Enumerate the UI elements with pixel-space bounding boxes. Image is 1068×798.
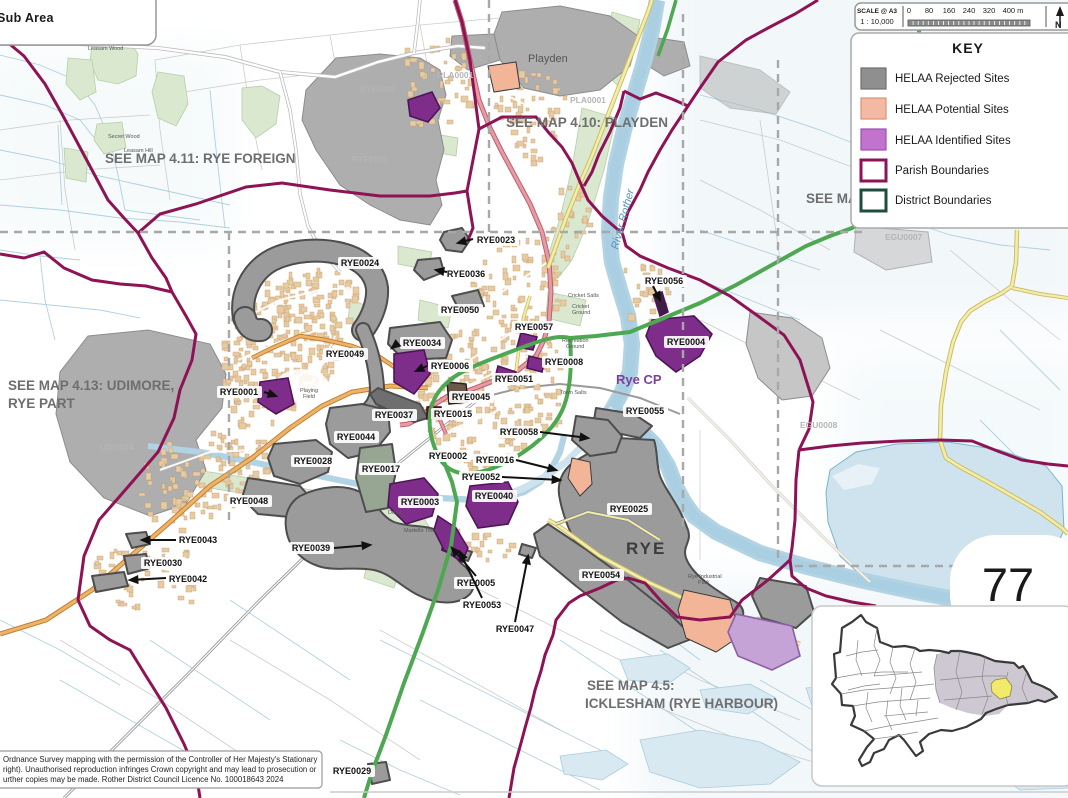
svg-text:District Boundaries: District Boundaries bbox=[895, 195, 992, 207]
svg-text:Ground: Ground bbox=[566, 344, 584, 350]
svg-text:Cricket Salts: Cricket Salts bbox=[568, 293, 599, 299]
svg-text:Playden: Playden bbox=[528, 53, 568, 65]
svg-text:RYE0017: RYE0017 bbox=[362, 464, 400, 474]
svg-text:PLA0001: PLA0001 bbox=[570, 95, 606, 105]
svg-text:RYE0034: RYE0034 bbox=[403, 338, 441, 348]
svg-text:KEY: KEY bbox=[952, 40, 984, 56]
svg-text:RYE0047: RYE0047 bbox=[496, 624, 534, 634]
svg-text:RYE0057: RYE0057 bbox=[515, 322, 553, 332]
svg-text:Ordnance Survey mapping with t: Ordnance Survey mapping with the permiss… bbox=[3, 755, 317, 764]
svg-text:RYE0016: RYE0016 bbox=[476, 455, 514, 465]
svg-text:1 : 10,000: 1 : 10,000 bbox=[860, 17, 893, 26]
svg-text:RYE0025: RYE0025 bbox=[610, 504, 648, 514]
svg-text:Park: Park bbox=[698, 580, 710, 586]
svg-text:RYE0048: RYE0048 bbox=[230, 496, 268, 506]
svg-text:RYF0001: RYF0001 bbox=[360, 84, 396, 94]
svg-text:HELAA Identified Sites: HELAA Identified Sites bbox=[895, 135, 1011, 147]
svg-text:Secret Wood: Secret Wood bbox=[108, 134, 140, 140]
svg-text:RLA0001: RLA0001 bbox=[437, 70, 474, 80]
svg-text:HELAA Rejected Sites: HELAA Rejected Sites bbox=[895, 73, 1010, 85]
svg-text:400 m: 400 m bbox=[1003, 6, 1024, 15]
svg-text:RYE0036: RYE0036 bbox=[447, 269, 485, 279]
svg-text:RYE0049: RYE0049 bbox=[326, 349, 364, 359]
svg-text:RYE: RYE bbox=[626, 539, 666, 558]
svg-text:Field: Field bbox=[303, 394, 315, 400]
svg-text:RYE0029: RYE0029 bbox=[333, 766, 371, 776]
svg-text:SEE MAP 4.5:: SEE MAP 4.5: bbox=[587, 678, 675, 693]
svg-text:RYE0024: RYE0024 bbox=[341, 258, 379, 268]
svg-text:HELAA Potential Sites: HELAA Potential Sites bbox=[895, 104, 1009, 116]
svg-text:Martello Tower: Martello Tower bbox=[404, 528, 440, 534]
svg-text:RYE0043: RYE0043 bbox=[179, 535, 217, 545]
svg-text:RYE0039: RYE0039 bbox=[292, 543, 330, 553]
svg-text:SEE MAP 4.10: PLAYDEN: SEE MAP 4.10: PLAYDEN bbox=[506, 115, 668, 130]
svg-text:Sub Area: Sub Area bbox=[0, 11, 55, 25]
svg-text:320: 320 bbox=[983, 6, 996, 15]
svg-text:Leasam Wood: Leasam Wood bbox=[88, 46, 123, 52]
svg-text:Leasam Hill: Leasam Hill bbox=[124, 148, 153, 154]
svg-text:RYE0003: RYE0003 bbox=[401, 497, 439, 507]
svg-text:EGU0007: EGU0007 bbox=[885, 232, 923, 242]
svg-text:RYE0044: RYE0044 bbox=[337, 432, 375, 442]
svg-text:Parish Boundaries: Parish Boundaries bbox=[895, 165, 989, 177]
svg-text:RYE0028: RYE0028 bbox=[294, 456, 332, 466]
svg-text:240: 240 bbox=[963, 6, 976, 15]
svg-text:RYE0058: RYE0058 bbox=[500, 427, 538, 437]
svg-text:RYE0042: RYE0042 bbox=[169, 574, 207, 584]
svg-text:RYE0008: RYE0008 bbox=[545, 357, 583, 367]
svg-text:RYE0023: RYE0023 bbox=[477, 235, 515, 245]
svg-text:RYE0006: RYE0006 bbox=[431, 361, 469, 371]
svg-text:Town Salts: Town Salts bbox=[560, 390, 587, 396]
svg-text:RYE0052: RYE0052 bbox=[462, 472, 500, 482]
svg-text:Depot: Depot bbox=[388, 510, 403, 516]
svg-text:RYE0040: RYE0040 bbox=[475, 491, 513, 501]
svg-text:RYE0045: RYE0045 bbox=[452, 392, 490, 402]
svg-text:77: 77 bbox=[982, 558, 1034, 611]
svg-text:N: N bbox=[1055, 20, 1062, 30]
svg-text:0: 0 bbox=[907, 6, 911, 15]
svg-text:RYE0056: RYE0056 bbox=[645, 276, 683, 286]
svg-text:EGU0008: EGU0008 bbox=[800, 420, 838, 430]
svg-text:RYE PART: RYE PART bbox=[8, 396, 76, 411]
svg-text:SEE MA: SEE MA bbox=[806, 191, 858, 206]
svg-text:RYE0037: RYE0037 bbox=[375, 410, 413, 420]
svg-text:UDI0004: UDI0004 bbox=[100, 442, 134, 452]
svg-text:SEE MAP 4.13: UDIMORE,: SEE MAP 4.13: UDIMORE, bbox=[8, 378, 174, 393]
svg-text:RYE0054: RYE0054 bbox=[582, 570, 620, 580]
svg-text:urther copies may be made. Rot: urther copies may be made. Rother Distri… bbox=[3, 775, 284, 784]
svg-text:right). Unauthorised reproduct: right). Unauthorised reproduction infrin… bbox=[3, 765, 317, 774]
svg-text:RYE0055: RYE0055 bbox=[626, 406, 664, 416]
svg-text:80: 80 bbox=[925, 6, 933, 15]
svg-text:RYE0001: RYE0001 bbox=[220, 387, 258, 397]
svg-text:ICKLESHAM (RYE HARBOUR): ICKLESHAM (RYE HARBOUR) bbox=[585, 696, 778, 711]
svg-text:RYE0004: RYE0004 bbox=[667, 337, 705, 347]
svg-text:Ground: Ground bbox=[572, 310, 590, 316]
svg-text:RYE0050: RYE0050 bbox=[441, 305, 479, 315]
svg-text:RYE0030: RYE0030 bbox=[144, 558, 182, 568]
svg-text:160: 160 bbox=[943, 6, 956, 15]
svg-text:RYE0002: RYE0002 bbox=[429, 451, 467, 461]
svg-text:SCALE @ A3: SCALE @ A3 bbox=[857, 8, 897, 15]
svg-text:RYE0053: RYE0053 bbox=[463, 600, 501, 610]
svg-text:RYE0015: RYE0015 bbox=[434, 409, 472, 419]
svg-text:RYF0106: RYF0106 bbox=[352, 154, 388, 164]
svg-text:Rye CP: Rye CP bbox=[616, 372, 662, 387]
svg-text:RYE0051: RYE0051 bbox=[495, 374, 533, 384]
